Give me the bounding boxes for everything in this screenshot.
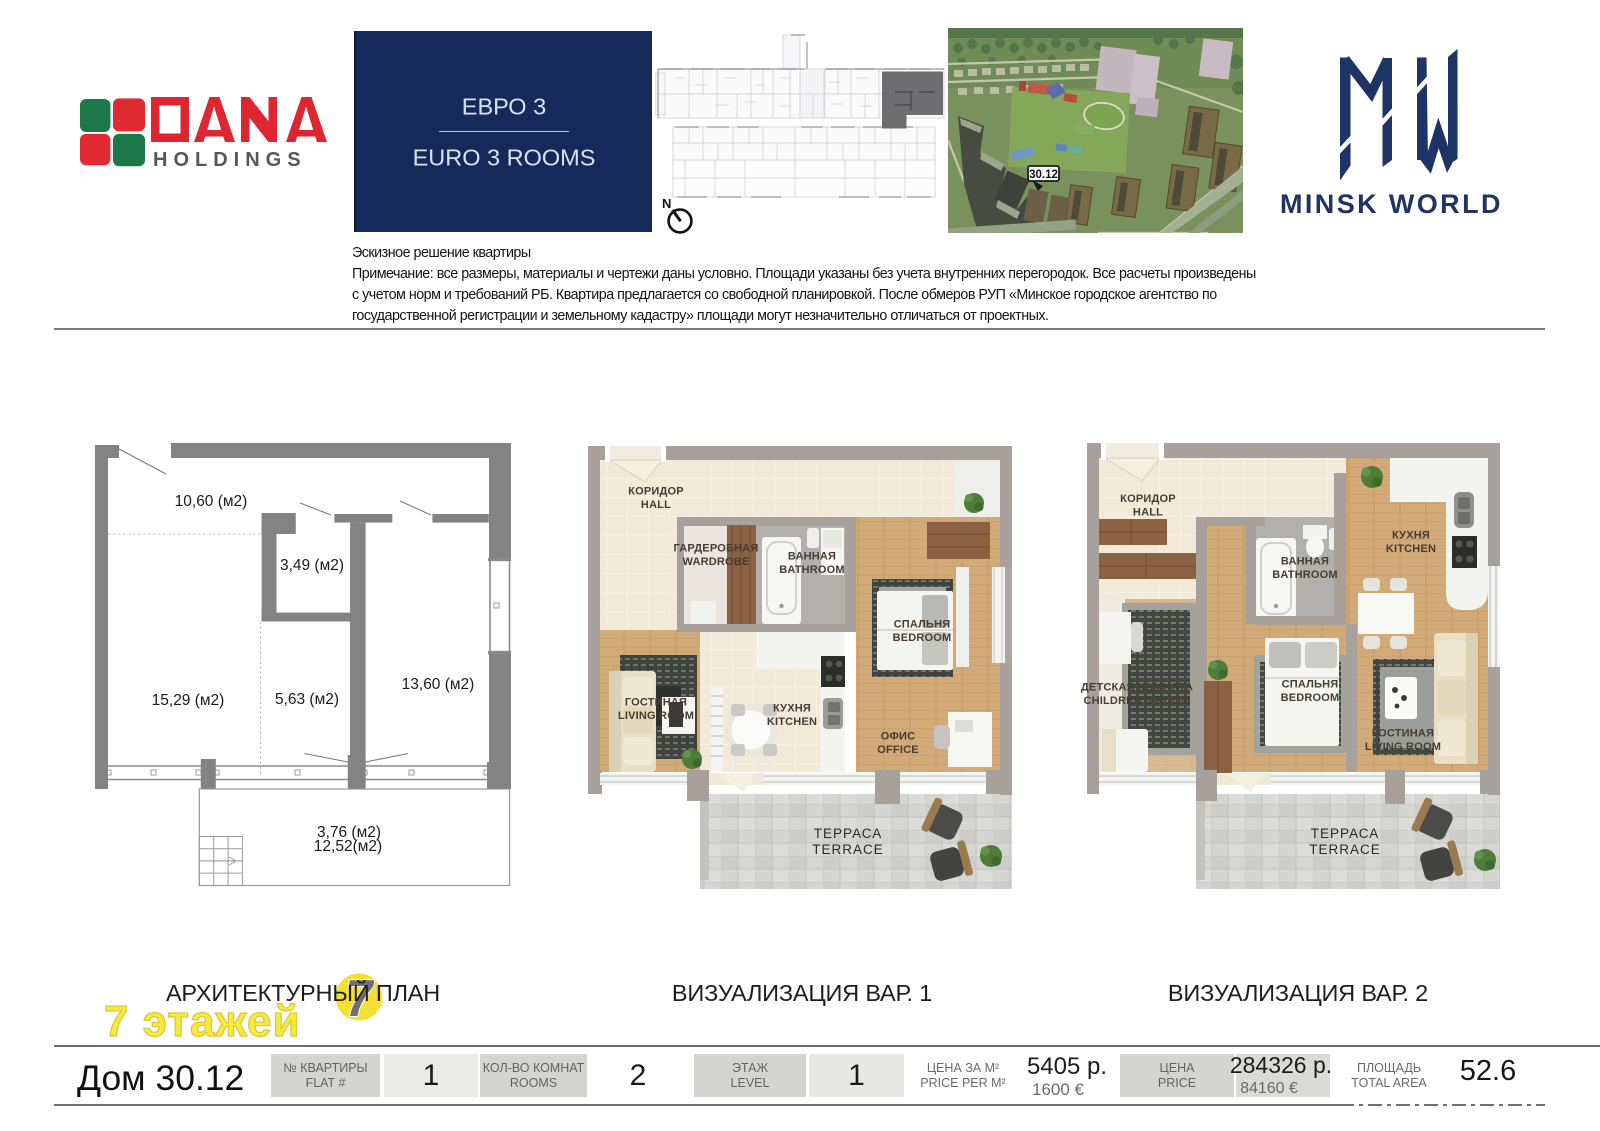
svg-text:ОФИС: ОФИС — [881, 731, 916, 743]
svg-text:ВАННАЯ: ВАННАЯ — [788, 551, 836, 563]
svg-text:ГОСТИНАЯ: ГОСТИНАЯ — [1372, 728, 1434, 740]
svg-text:5,63 (м2): 5,63 (м2) — [275, 691, 339, 708]
svg-text:3,49 (м2): 3,49 (м2) — [280, 557, 344, 574]
svg-text:ДЕТСКАЯ КОМНАТА: ДЕТСКАЯ КОМНАТА — [1081, 682, 1193, 694]
svg-text:TERRACE: TERRACE — [812, 842, 884, 857]
svg-text:BEDROOM: BEDROOM — [1281, 692, 1340, 704]
svg-text:15,29 (м2): 15,29 (м2) — [152, 692, 225, 709]
svg-text:КОРИДОР: КОРИДОР — [628, 486, 684, 498]
svg-text:BATHROOM: BATHROOM — [1272, 569, 1338, 581]
svg-text:HOLDINGS: HOLDINGS — [153, 149, 307, 171]
svg-text:ВАННАЯ: ВАННАЯ — [1281, 556, 1329, 568]
svg-text:TERRACE: TERRACE — [1309, 842, 1381, 857]
svg-text:10,60 (м2): 10,60 (м2) — [175, 493, 248, 510]
svg-text:ГОСТИНАЯ: ГОСТИНАЯ — [625, 697, 687, 709]
svg-text:ТЕРРАСА: ТЕРРАСА — [1311, 826, 1380, 841]
svg-text:СПАЛЬНЯ: СПАЛЬНЯ — [894, 619, 951, 631]
svg-text:СПАЛЬНЯ: СПАЛЬНЯ — [1282, 679, 1339, 691]
svg-text:13,60 (м2): 13,60 (м2) — [402, 676, 475, 693]
svg-text:LIVING ROOM: LIVING ROOM — [618, 710, 694, 722]
svg-text:KITCHEN: KITCHEN — [1386, 543, 1436, 555]
svg-text:HALL: HALL — [1133, 507, 1163, 519]
svg-text:ТЕРРАСА: ТЕРРАСА — [814, 826, 883, 841]
svg-text:ГАРДЕРОБНАЯ: ГАРДЕРОБНАЯ — [674, 543, 759, 555]
svg-text:LIVING ROOM: LIVING ROOM — [1365, 741, 1441, 753]
svg-text:30.12: 30.12 — [1029, 169, 1058, 181]
svg-text:WARDROBE: WARDROBE — [683, 556, 750, 568]
svg-text:CHILDREN'S ROOM: CHILDREN'S ROOM — [1083, 695, 1190, 707]
svg-text:12,52(м2): 12,52(м2) — [314, 838, 382, 855]
svg-text:КОРИДОР: КОРИДОР — [1120, 493, 1176, 505]
svg-text:BATHROOM: BATHROOM — [779, 564, 845, 576]
svg-text:MINSK WORLD: MINSK WORLD — [1280, 189, 1503, 219]
svg-text:OFFICE: OFFICE — [877, 744, 919, 756]
svg-text:HALL: HALL — [641, 499, 671, 511]
svg-text:N: N — [662, 196, 671, 211]
svg-text:KITCHEN: KITCHEN — [767, 716, 817, 728]
svg-text:КУХНЯ: КУХНЯ — [773, 703, 811, 715]
svg-text:КУХНЯ: КУХНЯ — [1392, 530, 1430, 542]
svg-text:BEDROOM: BEDROOM — [893, 632, 952, 644]
